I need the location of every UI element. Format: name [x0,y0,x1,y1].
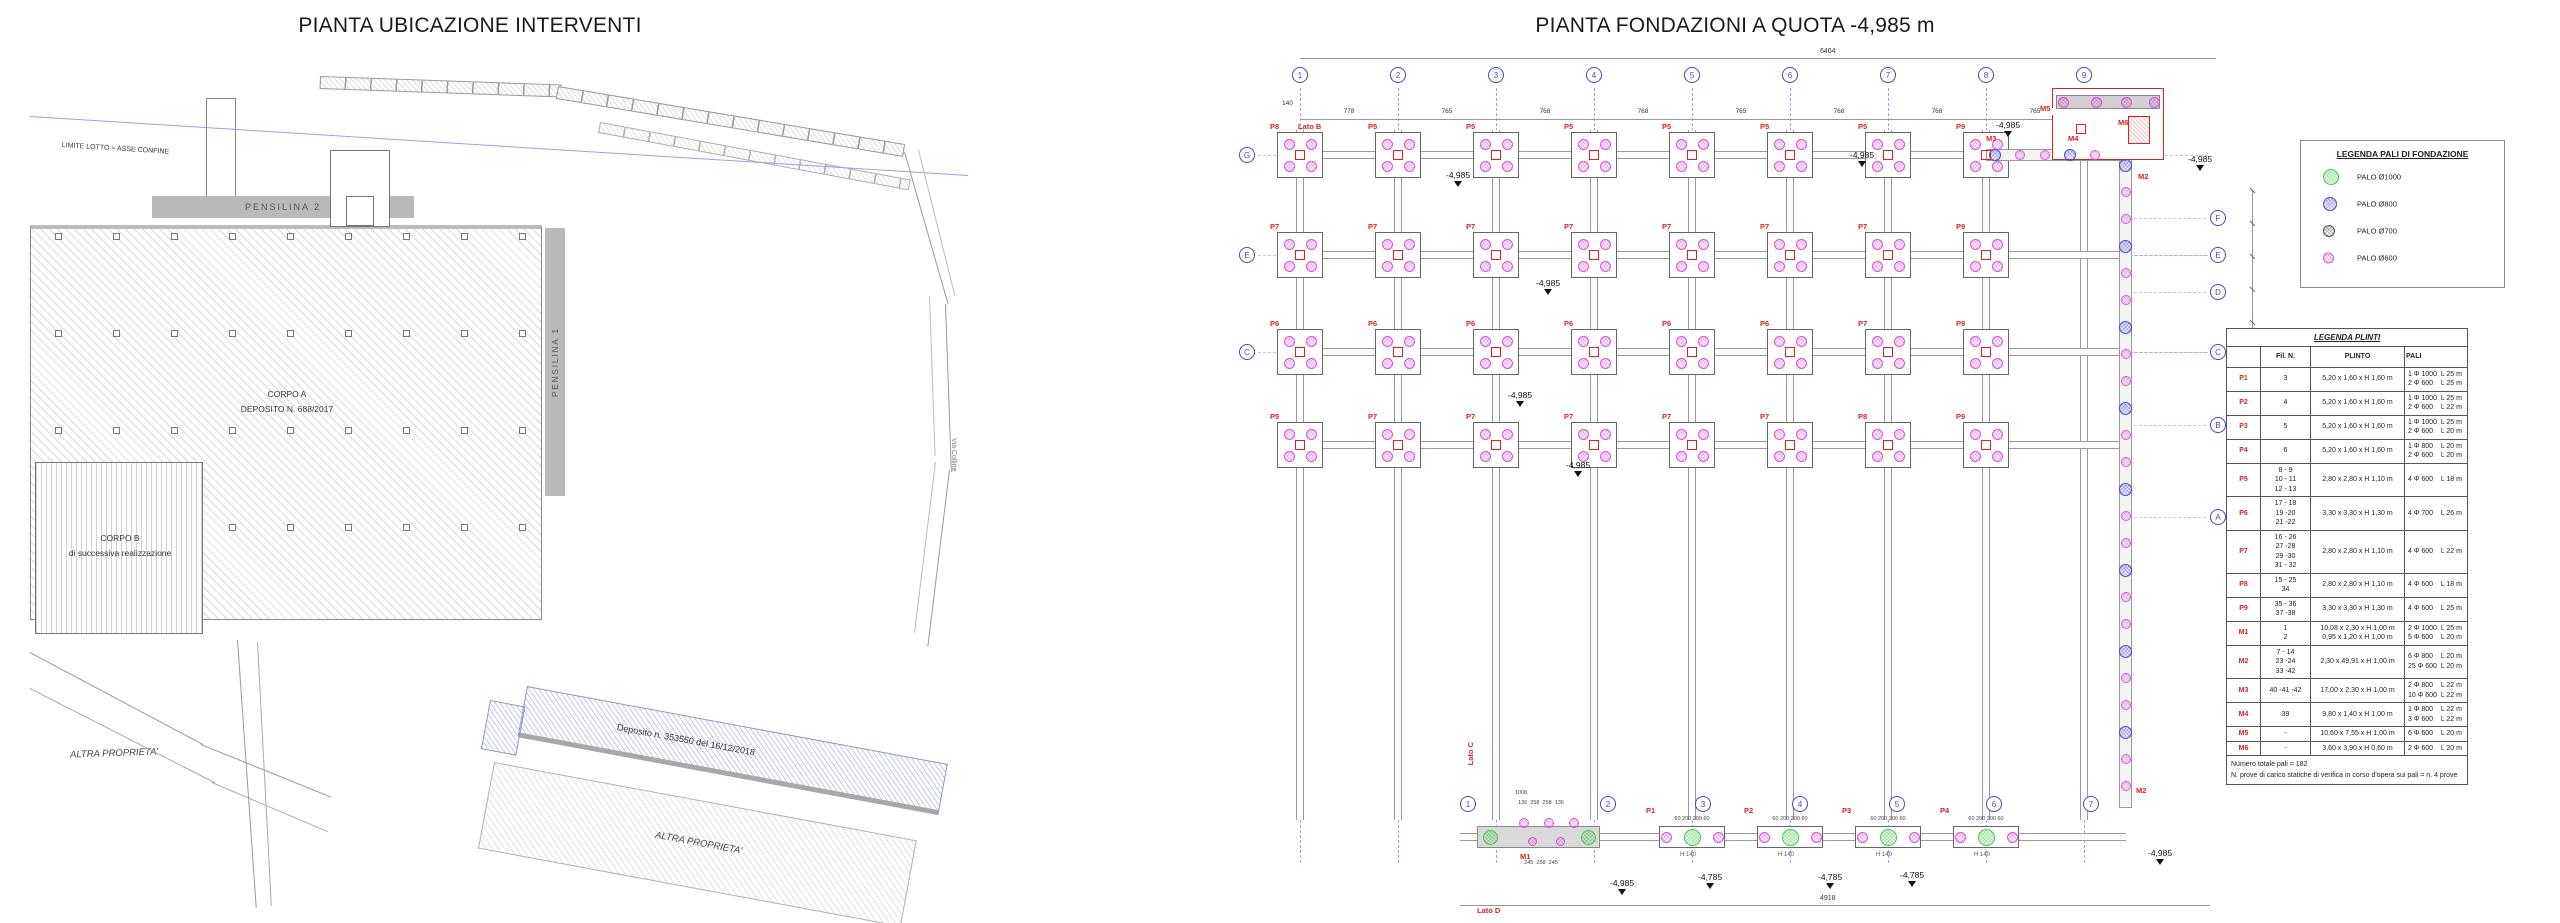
table-cell: P2 [2227,392,2261,415]
pile-600 [1992,451,2003,462]
dimension: 768 [1623,108,1663,115]
plinto-label: P9 [1956,122,1965,131]
pile-600 [1796,261,1807,272]
column-mark [1883,347,1893,357]
plinto-label: P7 [1270,222,1279,231]
pile-600 [1382,429,1393,440]
legend-label: PALO Ø600 [2357,253,2397,262]
pile-600 [1872,239,1883,250]
pile-600 [1774,429,1785,440]
axis-bubble: 6 [1782,67,1798,83]
table-cell: P3 [2227,416,2261,439]
column-mark [1883,440,1893,450]
pile-600 [1970,336,1981,347]
pile-600 [1676,358,1687,369]
axis-bubble: B [2210,417,2226,433]
pile-600 [1894,429,1905,440]
table-row: P716 - 2627 -2829 -3031 - 322,80 x 2,80 … [2227,531,2467,574]
elevation-flag [1454,181,1462,187]
table-cell: 2,80 x 2,80 x H 1,10 m [2311,574,2405,597]
column-mark [1491,250,1501,260]
dimension: H 140 [1974,852,1990,858]
pile-600 [1698,451,1709,462]
pile-600 [1676,336,1687,347]
pile-600 [1774,261,1785,272]
pile-600 [1774,239,1785,250]
pile-600 [1404,261,1415,272]
pile-600 [1698,161,1709,172]
pile-600 [1894,239,1905,250]
elevation-label: -4,985 [1508,390,1532,400]
pile-600 [1578,161,1589,172]
grid-line [2134,517,2206,518]
table-cell: 2 Φ 600 L 20 m [2405,742,2467,756]
table-cell: 4 Φ 600 L 18 m [2405,464,2467,497]
plinto-label: P6 [1270,319,1279,328]
table-row: M11210,08 x 2,30 x H 1,00 m0,95 x 1,20 x… [2227,622,2467,646]
plinto-label: P9 [1956,412,1965,421]
pile-600 [2007,832,2018,843]
pile-600 [2121,187,2131,197]
pile-600 [1306,261,1317,272]
pile-600 [1909,832,1920,843]
pile-600 [1857,832,1868,843]
pile-600 [1698,139,1709,150]
pile-600 [1661,832,1672,843]
column-mark [1785,150,1795,160]
pile-600 [2149,97,2160,108]
plinto-label: P6 [1466,319,1475,328]
legend-label: PALO Ø1000 [2357,172,2401,181]
pile-600 [1404,429,1415,440]
axis-bubble: 5 [1889,796,1905,812]
plinto-label: P3 [1842,806,1851,815]
dimension: 768 [1819,108,1859,115]
axis-bubble: F [2210,210,2226,226]
plinto-label: P1 [1646,806,1655,815]
pile-600 [1284,239,1295,250]
lato-label: Lato D [1477,906,1500,915]
structure-m4 [2056,95,2160,109]
elevation-flag [1516,401,1524,407]
pile-600 [2121,673,2131,683]
grid-line [2134,292,2206,293]
table-cell: - [2261,742,2311,756]
axis-bubble: C [1239,344,1255,360]
table-cell: 4 Φ 700 L 26 m [2405,497,2467,530]
table-cell: 5 [2261,416,2311,439]
plinto-label: M2 [2138,172,2148,181]
column-mark [1785,250,1795,260]
pile-600 [1306,239,1317,250]
pile-600 [1502,139,1513,150]
column-mark [1785,347,1795,357]
dimension: 60 200 200 60 [1757,816,1823,822]
pile-600 [1894,451,1905,462]
pile-600 [1284,139,1295,150]
elevation-flag [2156,859,2164,865]
pile-600 [1284,429,1295,440]
pile-600 [1404,239,1415,250]
table-cell: 1 Φ 1000 L 25 m2 Φ 600 L 20 m [2405,416,2467,439]
pile-600 [1600,261,1611,272]
pali-legend-items: PALO Ø1000PALO Ø800PALO Ø700PALO Ø600 [2301,163,2504,271]
table-cell: 3 [2261,368,2311,391]
pile-600 [2091,97,2102,108]
pile-600 [1872,161,1883,172]
pile-600 [1796,336,1807,347]
table-cell: 7 - 1423 -2433 -42 [2261,646,2311,679]
grid-line [2134,425,2206,426]
pile-600 [2040,150,2050,160]
axis-bubble: 3 [1695,796,1711,812]
table-cell: P5 [2227,464,2261,497]
pile-600 [2015,150,2025,160]
elevation-flag [1544,289,1552,295]
elevation-flag [2004,131,2012,137]
table-cell: 6 Φ 600 L 20 m [2405,727,2467,741]
pile-600 [1600,451,1611,462]
plinto-label: M2 [2136,786,2146,795]
column-mark [2076,124,2086,134]
table-cell: P7 [2227,531,2261,573]
table-cell: P4 [2227,440,2261,463]
dimension: 60 200 200 60 [1953,816,2019,822]
table-row: M27 - 1423 -2433 -422,30 x 49,91 x H 1,0… [2227,646,2467,680]
table-row: M6-3,60 x 3,90 x H 0,60 m2 Φ 600 L 20 m [2227,742,2467,756]
table-cell: M1 [2227,622,2261,645]
pile-1000 [1978,829,1995,846]
plinto-label: P6 [1662,319,1671,328]
pile-600 [1676,429,1687,440]
pile-600 [2121,376,2131,386]
pile-symbol [2323,197,2337,211]
table-row: M4399,80 x 1,40 x H 1,00 m1 Φ 800 L 22 m… [2227,703,2467,727]
pile-600 [1774,161,1785,172]
pile-600 [1404,358,1415,369]
table-cell: 12 [2261,622,2311,645]
elevation-label: -4,985 [1536,278,1560,288]
table-cell: 39 [2261,703,2311,726]
plinto-label: P5 [1368,122,1377,131]
table-cell: 1 Φ 1000 L 25 m2 Φ 600 L 25 m [2405,368,2467,391]
pile-600 [2121,700,2131,710]
pile-600 [1676,139,1687,150]
table-cell: 4 Φ 600 L 25 m [2405,598,2467,621]
pile-1000 [1483,830,1498,845]
pile-800 [2119,240,2132,253]
dimension: 1008 [1515,790,1527,796]
pile-600 [2121,97,2132,108]
plinto-label: P2 [1744,806,1753,815]
plinto-label: P6 [1760,319,1769,328]
plinto-label: P7 [1368,222,1377,231]
column-mark [1393,250,1403,260]
pile-600 [1698,261,1709,272]
dimension: 765 [1721,108,1761,115]
column-mark [1295,150,1305,160]
pile-600 [1306,358,1317,369]
pile-600 [1306,161,1317,172]
plinti-table-title: LEGENDA PLINTI [2227,329,2467,347]
table-cell: 5,20 x 1,60 x H 1,60 m [2311,416,2405,439]
pile-600 [1992,336,2003,347]
plinto-label: P5 [1760,122,1769,131]
pile-600 [1774,358,1785,369]
column-mark [1589,440,1599,450]
plinto-label: M3 [1986,134,1996,143]
pile-600 [1676,451,1687,462]
pile-600 [1502,451,1513,462]
axis-bubble: 2 [1600,796,1616,812]
pile-800 [2119,645,2132,658]
pile-600 [1556,837,1565,846]
pile-600 [1569,818,1579,828]
pile-600 [1502,358,1513,369]
dimension-line [1460,905,2210,906]
dimension: 4918 [1820,895,1836,902]
plinto-label: P9 [1956,222,1965,231]
pile-600 [2121,754,2131,764]
pile-600 [1676,239,1687,250]
pile-600 [2121,592,2131,602]
elevation-flag [1826,883,1834,889]
elevation-label: -4,985 [2188,154,2212,164]
legend-item: PALO Ø800 [2301,190,2504,217]
column-mark [1687,150,1697,160]
plinto-label: P4 [1940,806,1949,815]
pile-600 [1284,261,1295,272]
pile-600 [2121,457,2131,467]
pile-600 [1284,451,1295,462]
table-cell: 40 -41 -42 [2261,679,2311,702]
pile-1000 [1684,829,1701,846]
plinto-label: P6 [1564,319,1573,328]
dimension: H 140 [1876,852,1892,858]
table-cell: P8 [2227,574,2261,597]
pile-800 [2119,159,2132,172]
pile-600 [1404,161,1415,172]
pile-800 [2064,149,2076,161]
pile-600 [1502,429,1513,440]
table-cell: 2,30 x 49,91 x H 1,00 m [2311,646,2405,679]
pile-600 [1796,429,1807,440]
pile-600 [1894,261,1905,272]
load-test-note: N. prove di carico statiche di verifica … [2231,770,2463,781]
elevation-label: -4,985 [1610,878,1634,888]
table-row: M340 -41 -4217,00 x 2,30 x H 1,00 m2 Φ 8… [2227,679,2467,703]
pile-600 [2121,781,2131,791]
pile-600 [1480,336,1491,347]
plinti-table-footer: Numero totale pali = 182 N. prove di car… [2227,755,2467,784]
column-mark [1491,440,1501,450]
table-row: P135,20 x 1,60 x H 1,60 m1 Φ 1000 L 25 m… [2227,368,2467,392]
pile-600 [1774,451,1785,462]
table-cell: 1 Φ 800 L 22 m3 Φ 600 L 22 m [2405,703,2467,726]
pile-symbol [2323,169,2339,185]
pile-600 [1306,451,1317,462]
plinto-label: P8 [1270,122,1279,131]
table-cell: 10,08 x 2,30 x H 1,00 m0,95 x 1,20 x H 1… [2311,622,2405,645]
axis-bubble: 9 [2076,67,2092,83]
table-cell: 5,20 x 1,60 x H 1,60 m [2311,392,2405,415]
grid-line [2134,218,2206,219]
pile-800 [2119,321,2132,334]
axis-bubble: 8 [1978,67,1994,83]
pile-600 [1284,358,1295,369]
pile-600 [1894,358,1905,369]
grid-line [2134,255,2206,256]
pile-600 [1578,139,1589,150]
pile-800 [2119,483,2132,496]
axis-bubble: G [1239,147,1255,163]
column-mark [1393,440,1403,450]
pile-600 [1502,239,1513,250]
pile-600 [1894,161,1905,172]
pile-600 [1992,161,2003,172]
pile-600 [1894,336,1905,347]
axis-bubble: 1 [1460,796,1476,812]
plinto-label: P7 [1760,412,1769,421]
pile-600 [1578,261,1589,272]
axis-bubble: C [2210,344,2226,360]
pile-600 [2121,619,2131,629]
table-row: P815 - 25342,80 x 2,80 x H 1,10 m4 Φ 600… [2227,574,2467,598]
axis-bubble: 1 [1292,67,1308,83]
dimension: 6464 [1820,48,1836,55]
elevation-flag [1706,883,1714,889]
plinto-label: M4 [2068,134,2078,143]
pile-600 [1872,358,1883,369]
pile-600 [1502,336,1513,347]
table-cell: 17 - 1819 -2021 -22 [2261,497,2311,530]
axis-bubble: D [2210,284,2226,300]
pile-600 [1404,139,1415,150]
table-row: P58 - 910 - 1112 - 132,80 x 2,80 x H 1,1… [2227,464,2467,498]
pile-600 [1992,261,2003,272]
pile-600 [1676,161,1687,172]
pile-600 [1502,161,1513,172]
dimension: 778 [1329,108,1369,115]
plinto-label: P7 [1466,412,1475,421]
pile-600 [1970,429,1981,440]
table-cell: 35 - 3637 -38 [2261,598,2311,621]
pile-600 [1676,261,1687,272]
dimension: 245 258 245 [1486,860,1596,866]
axis-bubble: 5 [1684,67,1700,83]
column-mark [1393,347,1403,357]
table-cell: 3,30 x 3,30 x H 1,30 m [2311,497,2405,530]
pile-600 [1894,139,1905,150]
plinti-table-body: P135,20 x 1,60 x H 1,60 m1 Φ 1000 L 25 m… [2227,368,2467,756]
pile-600 [1992,358,2003,369]
table-cell: M2 [2227,646,2261,679]
pile-600 [1480,451,1491,462]
table-cell: 2,80 x 2,80 x H 1,10 m [2311,464,2405,497]
pile-600 [2121,268,2131,278]
pali-legend-title: LEGENDA PALI DI FONDAZIONE [2301,149,2504,159]
pile-600 [1872,261,1883,272]
elevation-label: -4,985 [2148,848,2172,858]
table-cell: 9,80 x 1,40 x H 1,00 m [2311,703,2405,726]
pile-600 [1382,261,1393,272]
structure-m6 [2128,116,2150,144]
table-row: M5-10,60 x 7,55 x H 1,00 m6 Φ 600 L 20 m [2227,727,2467,742]
plinto-label: P7 [1564,222,1573,231]
pile-600 [1600,358,1611,369]
pile-600 [1698,358,1709,369]
pile-600 [1578,239,1589,250]
pile-600 [1955,832,1966,843]
axis-bubble: 2 [1390,67,1406,83]
table-cell: 5,20 x 1,60 x H 1,60 m [2311,368,2405,391]
axis-bubble: 7 [2083,796,2099,812]
elevation-flag [1618,889,1626,895]
table-cell: 6 [2261,440,2311,463]
table-cell: 4 [2261,392,2311,415]
plinto-label: M6 [2118,118,2128,127]
pile-600 [1872,451,1883,462]
pile-600 [1578,429,1589,440]
table-cell: 15 - 2534 [2261,574,2311,597]
pile-600 [1382,139,1393,150]
plinto-label: P7 [1466,222,1475,231]
pile-600 [1970,358,1981,369]
table-row: P245,20 x 1,60 x H 1,60 m1 Φ 1000 L 25 m… [2227,392,2467,416]
pile-600 [1528,837,1537,846]
plinto-label: P7 [1858,222,1867,231]
pile-600 [1759,832,1770,843]
pile-600 [1480,139,1491,150]
plinto-label: M1 [1520,852,1530,861]
pile-600 [1480,239,1491,250]
pile-600 [1600,239,1611,250]
table-cell: 2 Φ 1000 L 25 m5 Φ 600 L 20 m [2405,622,2467,645]
dimension: 136 258 258 136 [1486,800,1596,806]
column-mark [1981,347,1991,357]
column-mark [1589,347,1599,357]
pile-600 [1600,161,1611,172]
elevation-flag [1574,471,1582,477]
axis-bubble: 4 [1586,67,1602,83]
plinto-label: P7 [1858,319,1867,328]
table-row: P935 - 3637 -383,30 x 3,30 x H 1,30 m4 Φ… [2227,598,2467,622]
pile-600 [2090,150,2100,160]
pile-600 [1796,451,1807,462]
axis-bubble: 4 [1792,796,1808,812]
pile-800 [2119,726,2132,739]
dimension: 60 200 200 60 [1659,816,1725,822]
elevation-label: -4,985 [1996,120,2020,130]
column-mark [1981,150,1991,160]
table-header-cell [2227,347,2261,367]
plinto-label: P8 [1858,412,1867,421]
column-mark [1883,250,1893,260]
pile-600 [1382,451,1393,462]
table-cell: P9 [2227,598,2261,621]
column-mark [1295,440,1305,450]
table-header-cell: Fil. N. [2261,347,2311,367]
column-mark [1981,440,1991,450]
pile-600 [1970,239,1981,250]
plinto-label: P5 [1858,122,1867,131]
plinto-label: P6 [1368,319,1377,328]
table-cell: 8 - 910 - 1112 - 13 [2261,464,2311,497]
elevation-flag [1858,161,1866,167]
pile-1000 [1880,829,1897,846]
plinto-label: P7 [1662,222,1671,231]
lato-label: Lato C [1466,742,1475,765]
